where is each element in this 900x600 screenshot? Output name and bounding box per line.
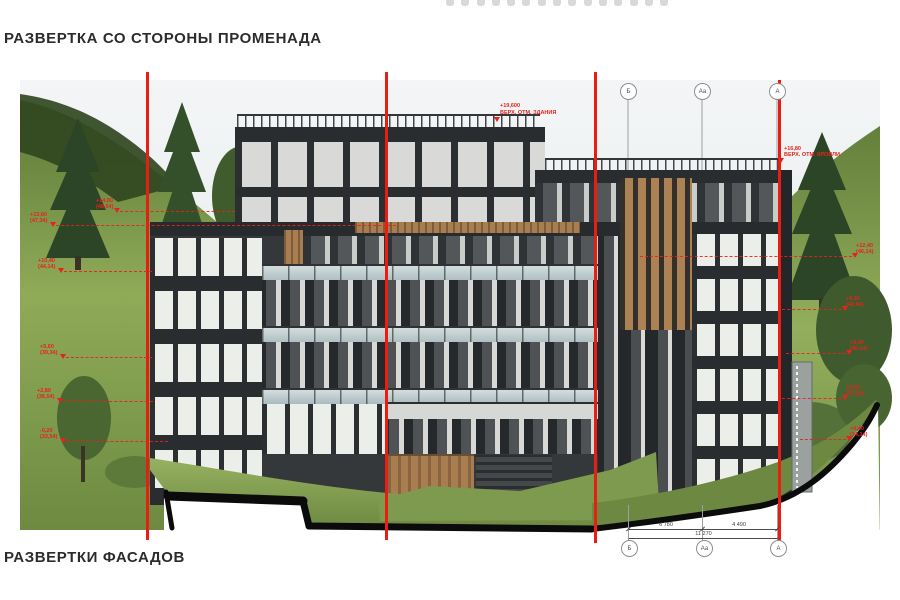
level-mark-left-4: +2,80 (36,54)	[37, 388, 54, 400]
level-datum: (33,54)	[40, 434, 57, 440]
level-datum: (39,34)	[40, 350, 57, 356]
level-marker	[846, 350, 852, 355]
level-dash-line	[800, 439, 846, 440]
level-mark-left-1: +13,60 (47,34)	[30, 212, 47, 224]
level-mark-left-3: +5,60 (39,34)	[40, 344, 57, 356]
level-datum: (42,94)	[846, 302, 863, 308]
red-section-line-3	[594, 72, 597, 543]
level-dash-line	[782, 398, 842, 399]
axis-label: Аа	[699, 89, 706, 95]
level-dash-line	[782, 309, 842, 310]
level-dash-line	[120, 211, 235, 212]
level-datum: (36,54)	[37, 394, 54, 400]
level-dash-line	[786, 353, 846, 354]
red-section-line-4	[778, 80, 781, 543]
level-mark-left-0: +14,80 (48,54)	[96, 198, 113, 210]
axis-bubble-top-aa: Аа	[694, 83, 711, 100]
level-mark-left-5: -0,20 (33,54)	[40, 428, 57, 440]
level-datum: ВЕРХ. ОТМ. КРОВЛИ	[784, 152, 840, 158]
level-marker	[842, 306, 848, 311]
roof-elevation-note: +19,600 ВЕРХ. ОТМ. ЗДАНИЯ	[500, 103, 556, 116]
level-datum: (37,34)	[846, 391, 863, 397]
retaining-wall	[792, 362, 812, 492]
level-marker	[842, 395, 848, 400]
level-mark-left-2: +10,40 (44,14)	[38, 258, 55, 270]
axis-bubble-top-a: А	[769, 83, 786, 100]
axis-label: А	[775, 89, 779, 95]
level-datum: (48,54)	[96, 204, 113, 210]
red-section-line-2	[385, 72, 388, 540]
level-datum: (44,14)	[38, 264, 55, 270]
level-datum: (40,14)	[850, 346, 867, 352]
level-datum: (34,14)	[850, 432, 867, 438]
level-dash-line	[66, 357, 152, 358]
level-datum: (47,34)	[30, 218, 47, 224]
red-section-line-1	[146, 72, 149, 540]
level-dash-line	[640, 256, 852, 257]
architectural-sheet: РАЗВЕРТКА СО СТОРОНЫ ПРОМЕНАДА РАЗВЕРТКИ…	[0, 0, 900, 600]
level-dash-line	[64, 271, 152, 272]
level-dash-line	[63, 401, 153, 402]
level-dash-line	[56, 225, 396, 226]
level-marker	[852, 253, 858, 258]
axis-bubble-top-b: Б	[620, 83, 637, 100]
level-mark-right-3: +6,40 (40,14)	[850, 340, 867, 352]
roof-note-caption: ВЕРХ. ОТМ. ЗДАНИЯ	[500, 110, 556, 117]
roof-note-marker	[494, 117, 500, 122]
level-mark-right-1: +12,40 (46,14)	[856, 243, 873, 255]
level-mark-right-0: +16,80 ВЕРХ. ОТМ. КРОВЛИ	[784, 146, 840, 158]
level-dash-line	[66, 441, 168, 442]
level-mark-right-4: +3,60 (37,34)	[846, 385, 863, 397]
level-datum: (46,14)	[856, 249, 873, 255]
level-mark-right-5: +0,40 (34,14)	[850, 426, 867, 438]
axis-label: Б	[627, 89, 631, 95]
level-marker	[778, 158, 784, 163]
level-mark-right-2: +9,20 (42,94)	[846, 296, 863, 308]
level-marker	[846, 436, 852, 441]
foreground-terrain	[0, 0, 900, 600]
